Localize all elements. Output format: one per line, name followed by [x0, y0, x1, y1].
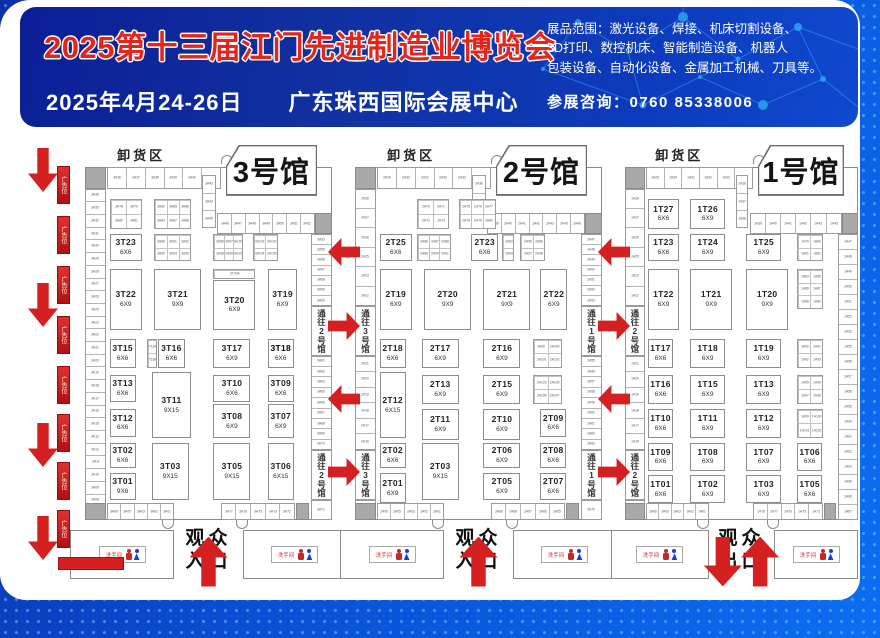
booth-small: 1A92: [798, 353, 810, 367]
booth-small: 2A97: [521, 248, 532, 261]
booth-small: 3A32: [86, 214, 105, 227]
booth-cluster: 1A831A851A861A871A881A89: [797, 269, 823, 310]
booth-small: 1A59: [839, 399, 857, 414]
booth-small: 1A95: [798, 376, 810, 390]
booth-small: 1A45: [826, 214, 841, 233]
booth-small: 3A87: [167, 214, 179, 228]
male-icon: [396, 549, 402, 561]
booth-small: 2A06: [378, 504, 390, 519]
booth-small: 3A95: [179, 248, 191, 261]
booth-3T20: 3T206X9: [213, 280, 255, 330]
booth-small: 3A48: [245, 214, 259, 233]
booth-small: 1A53: [839, 324, 857, 339]
booth-small: 2A23: [356, 266, 375, 285]
female-icon: [134, 549, 140, 561]
booth-small: 1A47: [839, 235, 857, 249]
booth-small: 1A16: [626, 433, 644, 449]
booth-small: 3A93: [167, 248, 179, 261]
booth-small: 1A06: [647, 504, 658, 519]
booth-3T11: 3T119X15: [152, 372, 192, 439]
booth-small: 3A38: [145, 168, 164, 188]
booth-small: 3A75: [250, 504, 265, 519]
pillar: [566, 503, 578, 520]
hall-2: 卸货区2号馆2A292A302A312A322A332A352A282A272A…: [355, 145, 602, 595]
booth-2T23: 2T236X6: [471, 234, 498, 261]
booth-3T07: 3T076X9: [268, 404, 294, 438]
booth-small: 3A77: [222, 504, 236, 519]
booth-small: 1A61: [839, 429, 857, 444]
perimeter-booth-strip: 2A392A402A412A422A432A452A46: [487, 213, 585, 234]
booth-small: 3A35: [86, 190, 105, 202]
booth-small: 3A58: [312, 275, 331, 285]
booth-small: 2A30: [396, 168, 415, 188]
booth-small: 2A101: [534, 353, 548, 367]
booth-small: 2A43: [542, 214, 556, 233]
perimeter-booth-strip: 2A552A562A572A582A592A602A612A622A63: [581, 356, 602, 451]
booth-small: 1A90: [798, 340, 810, 354]
booth-small: 1A41: [780, 214, 795, 233]
booth-small: 1A51: [839, 294, 857, 309]
booth-small: 2A70: [418, 200, 433, 214]
booth-2T08: 2T086X6: [540, 443, 566, 468]
booth-small: 2A68: [505, 504, 520, 519]
booth-small: 3A29: [86, 252, 105, 265]
booth-small: 2A71: [433, 200, 448, 214]
expo-poster: 2025第十三届江门先进制造业博览会 2025年4月24-26日 广东珠西国际会…: [0, 0, 880, 638]
booth-small: 3A15: [86, 417, 105, 430]
booth-small: 2A80: [483, 214, 495, 228]
booth-small: 1A57: [839, 369, 857, 384]
pillar: [585, 213, 602, 234]
booth-small: 1A83: [798, 270, 810, 283]
male-icon: [568, 549, 574, 561]
door-arc: [697, 520, 709, 529]
booth-small: 2A51: [582, 275, 601, 285]
booth-small: 2A31: [415, 168, 434, 188]
booth-3T19: 3T196X9: [268, 269, 298, 330]
booth-cluster: 1A951A961A971A98: [797, 375, 823, 404]
booth-small: 3A03: [134, 504, 147, 519]
booth-small: 3A30: [86, 239, 105, 252]
booth-2T17: 2T176X9: [422, 339, 459, 368]
booth-small: 2A79: [471, 214, 483, 228]
ad-banner: 广告位: [57, 510, 70, 548]
booth-2T21: 2T219X9: [483, 269, 530, 330]
booth-small: 1A20: [626, 371, 644, 387]
booth-small: 3A43: [203, 193, 215, 210]
booth-small: 1A22: [626, 286, 644, 305]
booth-small: 2A55: [582, 357, 601, 366]
perimeter-booth-strip: 3A463A473A483A493A503A513A52: [217, 213, 315, 234]
booth-small: 2A05: [390, 504, 403, 519]
booth-small: 2A75: [460, 200, 472, 214]
female-icon: [306, 549, 312, 561]
booth-small: 3A52: [300, 214, 314, 233]
pillar: [824, 503, 836, 520]
booth-small: 2A107: [548, 389, 562, 403]
booth-1T23: 1T236X6: [648, 234, 678, 261]
booth-small: 3T16B: [148, 353, 156, 367]
booth-small: 1A43: [810, 214, 825, 233]
booth-small: 2A58: [582, 387, 601, 397]
pillar: [355, 503, 376, 520]
perimeter-booth-strip: 3A533A553A563A573A583A593A60: [311, 234, 332, 306]
booth-small: 3A22: [86, 328, 105, 341]
booth-small: 3A101: [233, 248, 242, 261]
booth-small: 2A95: [521, 235, 532, 248]
booth-small: 2A22: [356, 286, 375, 305]
booth-cluster: 1A991A1001A1011A102: [797, 409, 823, 438]
booth-2T18: 2T186X6: [380, 339, 406, 368]
booth-small: 1A37: [737, 193, 748, 210]
booth-small: 2A89: [418, 248, 429, 261]
door-arc: [506, 520, 518, 529]
male-icon: [663, 549, 669, 561]
booth-small: 3A79: [126, 200, 141, 214]
booth-small: 1A100: [810, 410, 822, 424]
booth-small: 3A73: [265, 504, 280, 519]
booth-small: 2A49: [582, 254, 601, 264]
booth-3T09: 3T096X6: [268, 375, 294, 402]
booth-1T15: 1T156X9: [690, 375, 725, 404]
booth-small: 1A91: [810, 340, 822, 354]
booth-2T25: 2T256X6: [380, 234, 412, 261]
booth-small: 2A65: [549, 504, 564, 519]
booth-3T18: 3T186X6: [268, 339, 294, 368]
booth-1T08: 1T086X9: [690, 443, 725, 471]
booth-small: 2A98: [533, 248, 544, 261]
booth-small: 2A90: [429, 248, 440, 261]
booth-small: 2A88: [439, 235, 450, 248]
booth-2T03: 2T039X15: [422, 443, 459, 500]
hall-name: 2号馆: [497, 146, 586, 194]
booth-2T02: 2T026X6: [380, 443, 406, 468]
booth-small: 3A17: [86, 392, 105, 405]
booth-small: 1A30: [664, 168, 682, 188]
booth-small: 3A02: [147, 504, 160, 519]
booth-small: 2A96: [533, 235, 544, 248]
booth-3T21: 3T219X9: [154, 269, 201, 330]
booth-small: 3A59: [312, 285, 331, 295]
flow-arrow-down: [28, 516, 58, 560]
perimeter-booth-strip: 1A391A401A411A421A431A45: [750, 213, 842, 234]
booth-small: 2A52: [582, 285, 601, 295]
booth-small: 3A78: [111, 200, 126, 214]
booth-small: 1A42: [795, 214, 810, 233]
female-icon: [671, 549, 677, 561]
booth-1T12: 1T126X9: [746, 409, 781, 438]
male-icon: [820, 549, 826, 561]
booth-small: 3A40: [182, 168, 201, 188]
booth-small: 1A93: [810, 353, 822, 367]
ad-bar: [58, 557, 124, 570]
booth-small: 3A102: [254, 235, 265, 248]
restroom-sign: 洗手间: [636, 546, 683, 564]
booth-3T15: 3T156X6: [110, 339, 136, 368]
booth-3T06: 3T066X15: [268, 443, 294, 500]
booth-small: 1A01: [695, 504, 707, 519]
booth-small: 3A25: [86, 303, 105, 316]
booth-small: 1A89: [810, 295, 822, 308]
booth-small: 2A01: [430, 504, 443, 519]
booth-small: 3A42: [203, 176, 215, 192]
booth-small: 3A76: [235, 504, 250, 519]
perimeter-booth-strip: 3A423A433A45: [202, 175, 216, 228]
booth-2T13: 2T136X9: [422, 375, 459, 404]
booth-small: 1A18: [626, 402, 644, 418]
booth-2T15: 2T156X9: [483, 375, 520, 404]
booth-2T12: 2T126X15: [380, 372, 406, 439]
booth-small: 3A12: [86, 443, 105, 456]
booth-small: 3A57: [312, 265, 331, 275]
booth-1T16: 1T166X6: [648, 375, 672, 404]
booth-2T07: 2T076X6: [540, 473, 566, 500]
booth-small: 2A59: [582, 397, 601, 407]
booth-small: 1A102: [810, 423, 822, 437]
booth-small: 3A39: [164, 168, 183, 188]
booth-small: 2A62: [582, 428, 601, 438]
booth-small: 2A73: [433, 214, 448, 228]
booth-3T02: 3T026X6: [110, 443, 136, 468]
booth-1T11: 1T116X9: [690, 409, 725, 438]
booth-small: 3A45: [203, 210, 215, 227]
corridor-label: 通往2号馆: [625, 306, 645, 356]
booth-small: 1A33: [717, 168, 735, 188]
perimeter-booth-strip: 2A062A052A032A022A01: [377, 503, 444, 520]
booth-small: 3A85: [167, 200, 179, 214]
flow-arrow-down: [28, 423, 58, 467]
booth-1T03: 1T036X9: [746, 475, 781, 503]
booth-1T25: 1T256X9: [746, 234, 781, 261]
booth-small: 1A50: [839, 279, 857, 294]
booth-3T16: 3T166X6: [158, 339, 185, 368]
booth-cluster: 3T16A3T16B: [147, 339, 157, 368]
booth-small: 3A60: [312, 295, 331, 305]
booth-small: 1A29: [647, 168, 664, 188]
booth-1T05: 1T056X6: [797, 475, 821, 503]
booth-small: 3A82: [155, 200, 167, 214]
booth-1T02: 1T026X9: [690, 475, 725, 503]
pillar: [625, 167, 645, 189]
hall-name: 1号馆: [759, 146, 842, 194]
booth-3T10: 3T106X6: [213, 375, 250, 402]
booth-small: 3A66: [312, 397, 331, 407]
booth-small: 2A33: [452, 168, 471, 188]
booth-cluster: 1A791A801A811A82: [797, 234, 823, 261]
unload-area-label: 卸货区: [117, 145, 165, 164]
booth-small: 1A40: [765, 214, 780, 233]
booth-small: 2A46: [570, 214, 584, 233]
booth-small: 2A16: [356, 433, 375, 449]
hall-3: 卸货区3号馆3A363A373A383A393A403A413A353A333A…: [85, 145, 332, 595]
hall-name: 3号馆: [227, 146, 316, 194]
booth-small: 3A21: [86, 341, 105, 354]
booth-1T18: 1T186X9: [690, 339, 725, 368]
booth-small: 1A66: [839, 489, 857, 504]
booth-small: 3A88: [179, 214, 191, 228]
booth-small: 3A91: [167, 235, 179, 248]
booth-small: 1A26: [626, 227, 644, 246]
booth-small: 1A63: [839, 459, 857, 474]
female-icon: [828, 549, 834, 561]
ad-banner: 广告位: [57, 462, 70, 500]
booth-small: 2A27: [356, 208, 375, 227]
restroom-sign: 洗手间: [271, 546, 318, 564]
pillar: [85, 503, 106, 520]
booth-small: 1A27: [626, 208, 644, 227]
booth-small: 2A105: [548, 376, 562, 390]
booth-small: 3A49: [259, 214, 273, 233]
perimeter-booth-strip: 1A061A051A031A021A01: [646, 503, 709, 520]
door-arc: [236, 520, 248, 529]
booth-small: 3A86: [179, 200, 191, 214]
pillar: [842, 213, 858, 234]
perimeter-booth-strip: 3A063A053A033A023A01: [107, 503, 174, 520]
booth-3T05: 3T059X15: [213, 443, 250, 500]
booth-1T10: 1T106X6: [648, 409, 672, 438]
booth-small: 1A67: [839, 504, 857, 519]
booth-small: 3A18: [86, 379, 105, 392]
booth-small: 2A72: [418, 214, 433, 228]
perimeter-booth-strip: 3A613A623A633A653A663A673A683A693A70: [311, 356, 332, 451]
booth-small: 3A89: [155, 235, 167, 248]
booth-small: 1A49: [839, 264, 857, 279]
booth-cluster: 2A702A712A722A73: [417, 199, 449, 229]
booth-small: 3A23: [86, 316, 105, 329]
booth-3T01: 3T019X6: [110, 473, 136, 500]
booth-cluster: 2A1032A1052A1062A107: [533, 375, 563, 404]
booth-small: 3A97: [224, 235, 233, 248]
booth-small: 3A98: [214, 248, 223, 261]
booth-cluster: 2A952A962A972A98: [520, 234, 545, 261]
booth-2T01: 2T016X9: [380, 473, 406, 504]
booth-1T21: 1T219X9: [690, 269, 732, 330]
ad-banner: 广告位: [57, 216, 70, 254]
ad-banner: 广告位: [57, 366, 70, 404]
booth-small: 3A01: [160, 504, 173, 519]
restroom-block: 洗手间: [513, 530, 617, 579]
booth-small: 3A50: [272, 214, 286, 233]
male-icon: [126, 549, 132, 561]
booth-small: 2A60: [582, 408, 601, 418]
perimeter-booth-strip: 3A773A763A753A733A72: [221, 503, 295, 520]
booth-small: 2A56: [582, 366, 601, 376]
booth-cluster: 2A752A762A772A782A792A80: [459, 199, 496, 229]
flow-arrow-down: [28, 148, 58, 192]
booth-small: 3A67: [312, 408, 331, 418]
booth-small: 2A67: [520, 504, 535, 519]
booth-small: 3A53: [312, 235, 331, 244]
ad-banner: 广告位: [57, 266, 70, 304]
booth-1T13: 1T136X9: [746, 375, 781, 404]
booth-small: 3A16: [86, 405, 105, 418]
booth-2T05: 2T056X9: [483, 473, 520, 500]
unload-area-label: 卸货区: [655, 145, 703, 164]
booth-3T17: 3T176X9: [213, 339, 250, 368]
hall-name-tag: 1号馆: [758, 145, 844, 196]
restroom-sign: 洗手间: [541, 546, 588, 564]
booth-small: 3T20A: [214, 270, 254, 278]
booth-2T11: 2T116X9: [422, 409, 459, 441]
booth-1T27: 1T276X6: [648, 199, 678, 229]
restroom-block: 洗手间: [774, 530, 858, 579]
booth-small: 1A77: [767, 504, 781, 519]
booth-small: 1A39: [751, 214, 765, 233]
booth-small: 1A78: [754, 504, 767, 519]
booth-small: 3A06: [108, 504, 120, 519]
corridor-label: 通往2号馆: [625, 450, 645, 500]
booth-small: 2A66: [535, 504, 550, 519]
hall-1: 卸货区1号馆1A291A301A311A321A331A351A281A271A…: [625, 145, 858, 595]
booth-small: 2A02: [417, 504, 430, 519]
booth-small: 3A36: [108, 168, 126, 188]
flow-arrow-down: [28, 283, 58, 327]
corridor-label: 通往3号馆: [355, 450, 376, 500]
booth-small: 2A42: [529, 214, 543, 233]
unload-area-label: 卸货区: [387, 145, 435, 164]
booth-small: 3A11: [86, 455, 105, 468]
booth-small: 2A57: [582, 376, 601, 386]
booth-small: 2A36: [473, 176, 485, 192]
booth-small: 2A03: [404, 504, 417, 519]
booth-small: 2A40: [501, 214, 515, 233]
booth-small: 2A106: [534, 389, 548, 403]
booth-small: 1A31: [681, 168, 699, 188]
hall-name-tag: 3号馆: [226, 145, 317, 196]
booth-small: 1A75: [794, 504, 808, 519]
booth-small: 3A09: [86, 481, 105, 494]
booth-small: 3A62: [312, 366, 331, 376]
booth-small: 1A86: [798, 283, 810, 296]
booth-small: 3A105: [265, 248, 276, 261]
booth-small: 1A76: [781, 504, 795, 519]
booth-small: 3A13: [86, 430, 105, 443]
pillar: [85, 167, 106, 189]
booth-small: 2A63: [582, 439, 601, 449]
booth-cluster: 3T20A: [213, 269, 255, 279]
booth-1T09: 1T096X6: [648, 443, 672, 471]
perimeter-booth-strip: 3A353A333A323A313A303A293A283A273A263A25…: [85, 189, 106, 520]
booth-cluster: 3A963A973A1003A983A993A101: [213, 234, 243, 261]
booth-2T09: 2T096X6: [540, 409, 566, 437]
booth-small: 1A97: [798, 389, 810, 403]
booth-3T03: 3T039X15: [152, 443, 189, 500]
booth-small: 2A70: [582, 501, 601, 519]
restroom-block: 洗手间: [611, 530, 709, 579]
corridor-label: 通往3号馆: [355, 306, 376, 356]
booth-small: 1A88: [798, 295, 810, 308]
booth-small: 3A65: [312, 387, 331, 397]
booth-small: 2A18: [356, 402, 375, 418]
booth-small: 1A05: [658, 504, 670, 519]
booth-small: 1A48: [839, 249, 857, 264]
booth-small: 3A104: [254, 248, 265, 261]
booth-small: 2A28: [356, 190, 375, 208]
booth-1T01: 1T016X6: [648, 475, 672, 503]
booth-small: 1A101: [798, 423, 810, 437]
booth-small: 1A81: [798, 248, 810, 261]
booth-small: 3A103: [265, 235, 276, 248]
pillar: [625, 503, 645, 520]
booth-small: 3A26: [86, 290, 105, 303]
restroom-block: 洗手间: [243, 530, 347, 579]
booth-small: 1A79: [798, 235, 810, 248]
booth-3T08: 3T086X9: [213, 404, 250, 438]
booth-small: 3A92: [179, 235, 191, 248]
ad-banner: 广告位: [57, 166, 70, 204]
perimeter-booth-strip: 2A70: [581, 500, 602, 520]
booth-small: 3A56: [312, 254, 331, 264]
